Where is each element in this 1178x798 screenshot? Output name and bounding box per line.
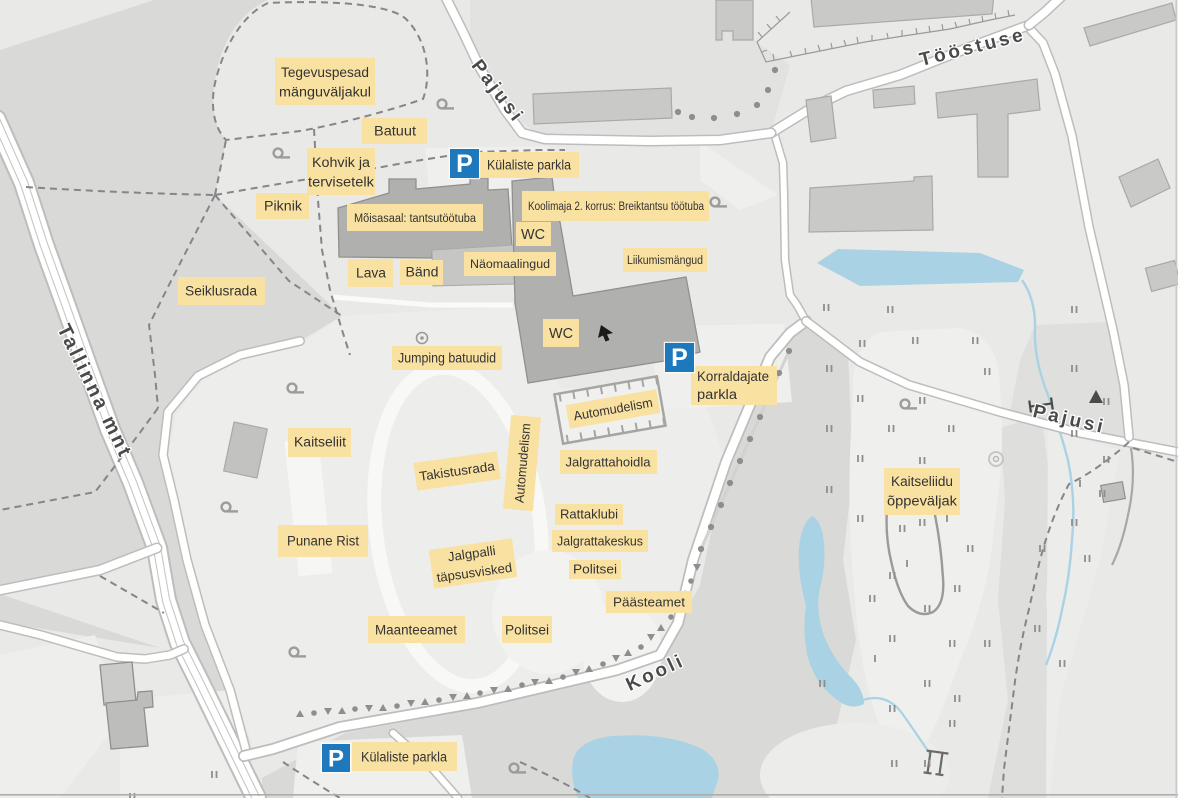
svg-text:Mõisasaal: tantsutöötuba: Mõisasaal: tantsutöötuba [354, 213, 477, 225]
svg-text:P: P [328, 745, 344, 772]
svg-text:P: P [456, 150, 473, 178]
svg-text:Batuut: Batuut [374, 124, 416, 139]
svg-text:Jalgrattakeskus: Jalgrattakeskus [557, 534, 643, 549]
svg-text:Tegevuspesad: Tegevuspesad [281, 65, 369, 80]
svg-text:mänguväljakul: mänguväljakul [279, 85, 371, 100]
svg-text:Politsei: Politsei [573, 562, 617, 577]
svg-text:Kaitseliit: Kaitseliit [294, 435, 346, 450]
svg-text:WC: WC [521, 226, 545, 243]
svg-text:Liikumismängud: Liikumismängud [627, 255, 703, 267]
svg-text:Korraldajate: Korraldajate [697, 369, 769, 384]
svg-text:Seiklusrada: Seiklusrada [185, 284, 257, 299]
svg-text:Jalgrattahoidla: Jalgrattahoidla [566, 455, 652, 470]
svg-text:Politsei: Politsei [505, 623, 549, 638]
svg-text:WC: WC [549, 325, 573, 342]
svg-text:Külaliste parkla: Külaliste parkla [361, 750, 447, 765]
svg-text:Bänd: Bänd [406, 265, 439, 280]
svg-text:Külaliste parkla: Külaliste parkla [487, 158, 571, 173]
svg-text:Päästeamet: Päästeamet [613, 595, 685, 610]
svg-text:õppeväljak: õppeväljak [887, 494, 957, 509]
svg-text:Näomaalingud: Näomaalingud [470, 259, 550, 271]
svg-text:Jumping batuudid: Jumping batuudid [398, 351, 496, 366]
svg-text:Kohvik ja: Kohvik ja [312, 155, 371, 170]
svg-text:tervisetelk: tervisetelk [308, 175, 374, 190]
svg-text:Lava: Lava [356, 266, 386, 281]
svg-text:Koolimaja 2. korrus: Breiktant: Koolimaja 2. korrus: Breiktantsu töötuba [528, 201, 705, 213]
svg-text:Kaitseliidu: Kaitseliidu [891, 474, 953, 489]
svg-text:Maanteeamet: Maanteeamet [375, 623, 457, 638]
svg-text:Piknik: Piknik [264, 199, 302, 214]
svg-text:P: P [671, 344, 688, 372]
svg-text:Rattaklubi: Rattaklubi [560, 507, 618, 522]
svg-text:parkla: parkla [697, 387, 738, 402]
svg-text:Punane Rist: Punane Rist [287, 534, 359, 549]
